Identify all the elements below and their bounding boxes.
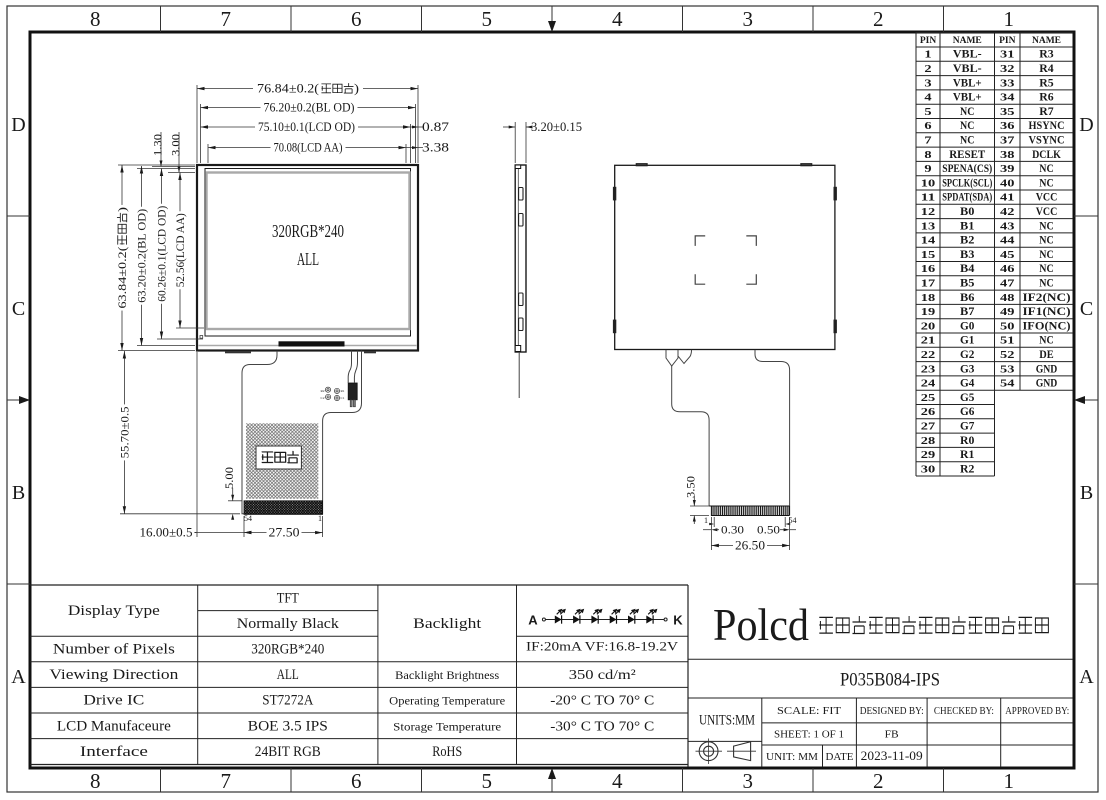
svg-text:C: C bbox=[12, 298, 25, 320]
svg-text:11: 11 bbox=[921, 193, 935, 204]
svg-text:20: 20 bbox=[921, 321, 935, 332]
svg-text:Backlight: Backlight bbox=[413, 616, 481, 632]
svg-text:55.70±0.5: 55.70±0.5 bbox=[117, 406, 131, 458]
svg-text:350 cd/m²: 350 cd/m² bbox=[569, 668, 636, 683]
svg-text:R6: R6 bbox=[1039, 90, 1053, 104]
svg-text:IF:20mA VF:16.8-19.2V: IF:20mA VF:16.8-19.2V bbox=[526, 638, 679, 653]
svg-text:52.56(LCD AA): 52.56(LCD AA) bbox=[173, 213, 187, 287]
svg-text:70.08(LCD AA): 70.08(LCD AA) bbox=[274, 141, 343, 155]
svg-text:B6: B6 bbox=[960, 290, 974, 304]
svg-text:76.20±0.2(BL OD): 76.20±0.2(BL OD) bbox=[264, 101, 355, 115]
svg-text:43: 43 bbox=[1000, 221, 1014, 232]
svg-text:FB: FB bbox=[885, 730, 899, 741]
svg-text:52: 52 bbox=[1000, 350, 1014, 361]
svg-text:37: 37 bbox=[1000, 136, 1014, 147]
svg-text:29: 29 bbox=[921, 450, 935, 461]
svg-text:BOE 3.5 IPS: BOE 3.5 IPS bbox=[248, 718, 328, 734]
svg-text:G3: G3 bbox=[960, 361, 974, 375]
svg-text:Polcd: Polcd bbox=[713, 599, 809, 650]
svg-text:RESET: RESET bbox=[949, 147, 985, 161]
svg-text:B4: B4 bbox=[960, 261, 974, 275]
svg-text:NC: NC bbox=[1039, 175, 1053, 189]
svg-text:UNITS:MM: UNITS:MM bbox=[699, 713, 755, 729]
svg-text:51: 51 bbox=[1000, 336, 1014, 347]
svg-text:42: 42 bbox=[1000, 207, 1014, 218]
svg-text:B: B bbox=[12, 482, 25, 504]
svg-text:27: 27 bbox=[921, 422, 935, 433]
svg-text:21: 21 bbox=[921, 336, 935, 347]
svg-text:38: 38 bbox=[1000, 150, 1014, 161]
svg-text:IF2(NC): IF2(NC) bbox=[1023, 290, 1071, 304]
svg-text:49: 49 bbox=[1000, 307, 1014, 318]
svg-text:32: 32 bbox=[1000, 64, 1014, 75]
svg-text:A: A bbox=[528, 613, 538, 628]
svg-text:54: 54 bbox=[244, 514, 252, 523]
svg-text:6: 6 bbox=[351, 7, 362, 31]
svg-text:36: 36 bbox=[1000, 121, 1014, 132]
svg-text:22: 22 bbox=[921, 350, 935, 361]
svg-text:3.20±0.15: 3.20±0.15 bbox=[531, 120, 582, 134]
svg-text:SHEET: 1 OF 1: SHEET: 1 OF 1 bbox=[774, 730, 844, 741]
svg-text:Normally Black: Normally Black bbox=[237, 616, 340, 632]
svg-text:3.38: 3.38 bbox=[422, 141, 449, 155]
svg-text:D: D bbox=[11, 114, 25, 136]
svg-text:19: 19 bbox=[921, 307, 935, 318]
svg-text:G6: G6 bbox=[960, 404, 974, 418]
svg-text:NC: NC bbox=[960, 104, 974, 118]
svg-text:LCD Manufaceure: LCD Manufaceure bbox=[57, 718, 171, 734]
svg-text:IFO(NC): IFO(NC) bbox=[1023, 318, 1071, 332]
svg-text:0.30: 0.30 bbox=[721, 523, 744, 537]
svg-text:30: 30 bbox=[921, 464, 935, 475]
svg-text:DE: DE bbox=[1039, 347, 1053, 361]
svg-text:-30° C TO 70° C: -30° C TO 70° C bbox=[550, 719, 654, 734]
svg-text:G7: G7 bbox=[960, 419, 974, 433]
svg-text:4: 4 bbox=[924, 93, 932, 104]
svg-text:D: D bbox=[1079, 114, 1093, 136]
svg-text:31: 31 bbox=[1000, 50, 1014, 61]
svg-text:4: 4 bbox=[612, 7, 623, 31]
svg-text:-20° C TO 70° C: -20° C TO 70° C bbox=[550, 694, 654, 709]
svg-text:R2: R2 bbox=[320, 389, 324, 393]
svg-text:10: 10 bbox=[921, 178, 935, 189]
svg-text:R0: R0 bbox=[960, 433, 974, 447]
svg-text:PIN: PIN bbox=[999, 36, 1016, 46]
svg-text:5: 5 bbox=[482, 769, 493, 793]
svg-text:53: 53 bbox=[1000, 364, 1014, 375]
svg-text:VBL-: VBL- bbox=[953, 47, 982, 61]
svg-text:B: B bbox=[1080, 482, 1093, 504]
svg-text:Storage Temperature: Storage Temperature bbox=[393, 719, 501, 733]
svg-text:7: 7 bbox=[924, 136, 931, 147]
svg-text:G5: G5 bbox=[960, 390, 974, 404]
svg-text:NC: NC bbox=[1039, 276, 1053, 290]
svg-text:APPROVED BY:: APPROVED BY: bbox=[1005, 706, 1069, 717]
svg-text:2: 2 bbox=[873, 7, 884, 31]
svg-text:25: 25 bbox=[921, 393, 935, 404]
svg-text:14: 14 bbox=[921, 236, 936, 247]
svg-text:B1: B1 bbox=[960, 218, 974, 232]
svg-text:1: 1 bbox=[924, 50, 931, 61]
svg-text:1: 1 bbox=[318, 514, 322, 523]
svg-text:17: 17 bbox=[921, 279, 935, 290]
svg-text:VBL-: VBL- bbox=[953, 61, 982, 75]
svg-text:15: 15 bbox=[921, 250, 935, 261]
svg-text:320RGB*240: 320RGB*240 bbox=[251, 642, 324, 658]
svg-text:Number of Pixels: Number of Pixels bbox=[53, 642, 175, 658]
svg-text:63.20±0.2(BL OD): 63.20±0.2(BL OD) bbox=[135, 209, 149, 303]
svg-text:VSYNC: VSYNC bbox=[1029, 133, 1065, 147]
svg-text:8: 8 bbox=[924, 150, 931, 161]
svg-text:Interface: Interface bbox=[80, 744, 148, 760]
svg-text:7: 7 bbox=[221, 769, 232, 793]
svg-text:3: 3 bbox=[743, 7, 754, 31]
svg-text:44: 44 bbox=[1000, 236, 1015, 247]
svg-text:B2: B2 bbox=[960, 233, 974, 247]
svg-text:Operating Temperature: Operating Temperature bbox=[389, 694, 505, 708]
svg-text:7: 7 bbox=[221, 7, 232, 31]
svg-text:24: 24 bbox=[921, 379, 936, 390]
svg-text:6: 6 bbox=[924, 121, 931, 132]
svg-text:2: 2 bbox=[873, 769, 884, 793]
svg-text:Drive IC: Drive IC bbox=[83, 693, 144, 709]
svg-text:9: 9 bbox=[924, 164, 931, 175]
svg-text:SPCLK(SCL): SPCLK(SCL) bbox=[942, 175, 992, 189]
svg-text:GND: GND bbox=[1036, 376, 1058, 390]
svg-text:A: A bbox=[1079, 666, 1094, 688]
svg-text:50: 50 bbox=[1000, 321, 1014, 332]
svg-text:3.50: 3.50 bbox=[684, 476, 698, 498]
svg-text:PIN: PIN bbox=[920, 36, 937, 46]
svg-text:5.00: 5.00 bbox=[222, 467, 236, 489]
svg-text:R4: R4 bbox=[1039, 61, 1053, 75]
svg-text:): ) bbox=[354, 82, 359, 96]
svg-text:DATE: DATE bbox=[826, 752, 854, 763]
svg-text:8: 8 bbox=[90, 7, 101, 31]
svg-text:5: 5 bbox=[482, 7, 493, 31]
svg-text:6: 6 bbox=[351, 769, 362, 793]
svg-text:CHECKED BY:: CHECKED BY: bbox=[934, 706, 994, 717]
svg-text:NC: NC bbox=[1039, 161, 1053, 175]
svg-text:45: 45 bbox=[1000, 250, 1014, 261]
svg-text:ALL: ALL bbox=[297, 249, 319, 269]
svg-text:NC: NC bbox=[960, 118, 974, 132]
svg-text:G1: G1 bbox=[960, 333, 974, 347]
svg-text:VCC: VCC bbox=[1036, 204, 1058, 218]
svg-text:48: 48 bbox=[1000, 293, 1014, 304]
svg-text:DESIGNED BY:: DESIGNED BY: bbox=[860, 706, 924, 717]
svg-text:): ) bbox=[115, 207, 129, 212]
svg-text:27.50: 27.50 bbox=[269, 526, 300, 540]
svg-text:B7: B7 bbox=[960, 304, 974, 318]
svg-text:NC: NC bbox=[1039, 247, 1053, 261]
svg-text:RoHS: RoHS bbox=[432, 744, 462, 760]
svg-text:26.50: 26.50 bbox=[735, 539, 765, 553]
svg-text:47: 47 bbox=[1000, 279, 1014, 290]
svg-text:3.00: 3.00 bbox=[169, 134, 183, 156]
svg-text:13: 13 bbox=[921, 221, 935, 232]
svg-text:G0: G0 bbox=[960, 318, 974, 332]
svg-text:3: 3 bbox=[743, 769, 754, 793]
svg-text:A: A bbox=[11, 666, 26, 688]
svg-text:NAME: NAME bbox=[1032, 36, 1061, 46]
svg-text:P035B084-IPS: P035B084-IPS bbox=[840, 670, 940, 691]
svg-text:R1: R1 bbox=[340, 389, 344, 393]
svg-text:28: 28 bbox=[921, 436, 935, 447]
svg-text:NC: NC bbox=[1039, 218, 1053, 232]
svg-text:NC: NC bbox=[1039, 233, 1053, 247]
svg-text:G4: G4 bbox=[960, 376, 974, 390]
svg-text:75.10±0.1(LCD OD): 75.10±0.1(LCD OD) bbox=[258, 120, 355, 134]
svg-text:HSYNC: HSYNC bbox=[1029, 118, 1065, 132]
svg-text:C1: C1 bbox=[340, 396, 344, 400]
svg-text:16.00±0.5: 16.00±0.5 bbox=[140, 526, 193, 540]
svg-text:41: 41 bbox=[1000, 193, 1014, 204]
svg-text:54: 54 bbox=[1000, 379, 1015, 390]
svg-text:B5: B5 bbox=[960, 276, 974, 290]
svg-text:TFT: TFT bbox=[277, 590, 299, 606]
svg-text:R3: R3 bbox=[1039, 47, 1053, 61]
svg-text:39: 39 bbox=[1000, 164, 1014, 175]
svg-text:SPDAT(SDA): SPDAT(SDA) bbox=[942, 190, 992, 204]
svg-text:VBL+: VBL+ bbox=[953, 90, 982, 104]
svg-text:R7: R7 bbox=[1039, 104, 1053, 118]
svg-text:UNIT: MM: UNIT: MM bbox=[766, 752, 818, 763]
svg-text:G2: G2 bbox=[960, 347, 974, 361]
svg-text:12: 12 bbox=[921, 207, 935, 218]
svg-text:NC: NC bbox=[960, 133, 974, 147]
svg-text:Display Type: Display Type bbox=[68, 603, 160, 619]
svg-text:5: 5 bbox=[924, 107, 931, 118]
svg-text:40: 40 bbox=[1000, 178, 1014, 189]
svg-text:18: 18 bbox=[921, 293, 935, 304]
svg-text:NC: NC bbox=[1039, 333, 1053, 347]
svg-text:76.84±0.2(: 76.84±0.2( bbox=[257, 82, 319, 96]
svg-text:2: 2 bbox=[924, 64, 931, 75]
svg-text:B3: B3 bbox=[960, 247, 974, 261]
svg-text:SPENA(CS): SPENA(CS) bbox=[942, 161, 992, 175]
svg-text:0.50: 0.50 bbox=[757, 523, 780, 537]
svg-text:Viewing Direction: Viewing Direction bbox=[49, 667, 179, 683]
svg-text:4: 4 bbox=[612, 769, 623, 793]
svg-text:NC: NC bbox=[1039, 261, 1053, 275]
svg-text:NAME: NAME bbox=[953, 36, 982, 46]
svg-text:33: 33 bbox=[1000, 78, 1014, 89]
svg-text:VCC: VCC bbox=[1036, 190, 1058, 204]
svg-text:C: C bbox=[1080, 298, 1093, 320]
svg-text:Backlight Brightness: Backlight Brightness bbox=[395, 668, 499, 682]
svg-text:R1: R1 bbox=[960, 447, 974, 461]
svg-text:0.87: 0.87 bbox=[422, 120, 449, 134]
svg-text:DCLK: DCLK bbox=[1032, 147, 1061, 161]
svg-text:24BIT RGB: 24BIT RGB bbox=[255, 744, 321, 760]
svg-text:1.30: 1.30 bbox=[151, 134, 165, 156]
svg-text:60.26±0.1(LCD OD): 60.26±0.1(LCD OD) bbox=[155, 206, 169, 302]
svg-text:35: 35 bbox=[1000, 107, 1014, 118]
svg-text:2023-11-09: 2023-11-09 bbox=[861, 749, 923, 763]
svg-text:SCALE: FIT: SCALE: FIT bbox=[777, 706, 842, 717]
svg-text:23: 23 bbox=[921, 364, 935, 375]
svg-text:1: 1 bbox=[1004, 769, 1015, 793]
svg-text:GND: GND bbox=[1036, 361, 1058, 375]
svg-text:8: 8 bbox=[90, 769, 101, 793]
svg-text:16: 16 bbox=[921, 264, 935, 275]
svg-text:34: 34 bbox=[1000, 93, 1015, 104]
svg-text:1: 1 bbox=[1004, 7, 1015, 31]
svg-text:C2: C2 bbox=[320, 396, 324, 400]
svg-text:B0: B0 bbox=[960, 204, 974, 218]
svg-text:320RGB*240: 320RGB*240 bbox=[272, 221, 344, 241]
svg-text:1: 1 bbox=[704, 516, 708, 525]
svg-text:R5: R5 bbox=[1039, 75, 1053, 89]
svg-text:K: K bbox=[673, 613, 683, 628]
svg-text:63.84±0.2(: 63.84±0.2( bbox=[115, 247, 129, 309]
svg-text:ST7272A: ST7272A bbox=[262, 693, 313, 709]
svg-text:R2: R2 bbox=[960, 461, 974, 475]
svg-text:ALL: ALL bbox=[277, 667, 299, 683]
svg-text:46: 46 bbox=[1000, 264, 1014, 275]
svg-text:26: 26 bbox=[921, 407, 935, 418]
svg-text:VBL+: VBL+ bbox=[953, 75, 982, 89]
svg-text:3: 3 bbox=[924, 78, 931, 89]
svg-text:IF1(NC): IF1(NC) bbox=[1023, 304, 1071, 318]
